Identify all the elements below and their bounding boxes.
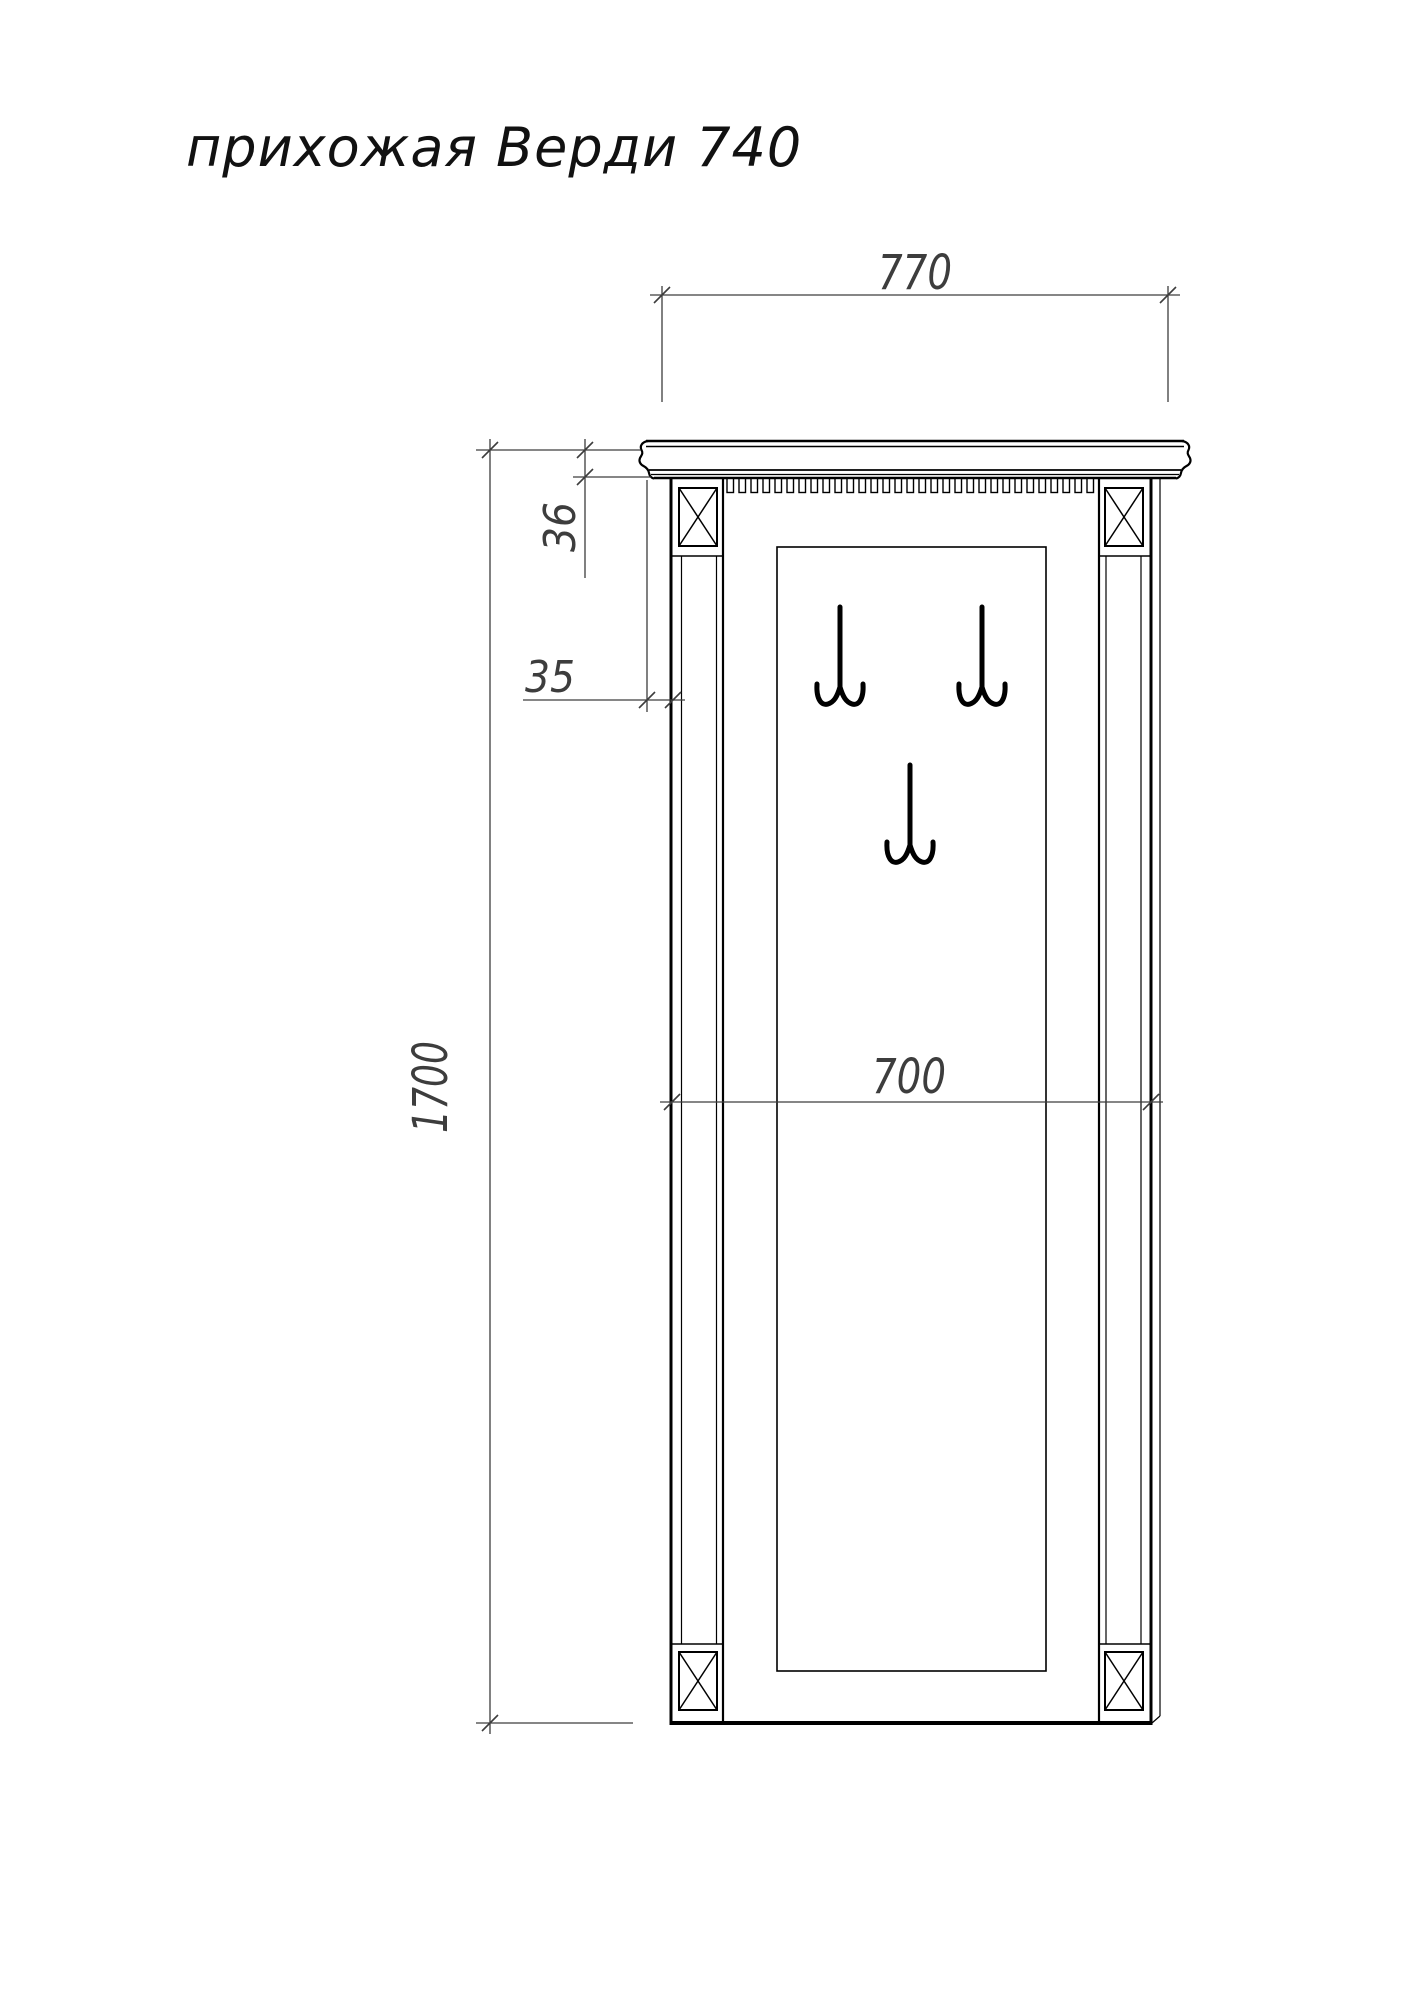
dimension-overall-height-label: 1700 (403, 1041, 459, 1133)
dentil-tooth (955, 479, 962, 493)
dentil-tooth (775, 479, 782, 493)
dentil-tooth (1075, 479, 1082, 493)
inner-panel (777, 547, 1046, 1671)
dimension-body-width: 700 (660, 1049, 1163, 1110)
dimension-cornice-height: 36 (535, 439, 651, 578)
dimension-overall-width: 770 (650, 245, 1180, 402)
hook-fork (817, 684, 863, 704)
dimension-cornice-height-label: 36 (535, 502, 586, 552)
hook-fork (959, 684, 1005, 704)
dentil-molding (727, 479, 1094, 493)
dentil-tooth (979, 479, 986, 493)
dentil-tooth (1003, 479, 1010, 493)
side-return-corner (1152, 1716, 1160, 1723)
dentil-tooth (763, 479, 770, 493)
coat-hook (817, 607, 863, 704)
dentil-tooth (1087, 479, 1094, 493)
dentil-tooth (823, 479, 830, 493)
dentil-tooth (859, 479, 866, 493)
dentil-tooth (1015, 479, 1022, 493)
page: прихожая Верди 740 (0, 0, 1413, 2000)
coat-hook (959, 607, 1005, 704)
left-top-capital (671, 488, 723, 556)
dentil-tooth (1039, 479, 1046, 493)
right-top-capital (1099, 488, 1151, 556)
dentil-tooth (1027, 479, 1034, 493)
dentil-tooth (907, 479, 914, 493)
left-bottom-capital (671, 1644, 723, 1710)
dimension-overall-width-label: 770 (878, 245, 952, 301)
dentil-tooth (943, 479, 950, 493)
dentil-tooth (871, 479, 878, 493)
dentil-tooth (835, 479, 842, 493)
hook-fork (887, 842, 933, 862)
dentil-tooth (811, 479, 818, 493)
dentil-tooth (883, 479, 890, 493)
dentil-tooth (799, 479, 806, 493)
technical-drawing: 770 1700 36 35 (0, 0, 1413, 2000)
right-pilaster (1099, 478, 1151, 1723)
dentil-tooth (847, 479, 854, 493)
dimension-overall-height: 1700 (403, 439, 641, 1734)
coat-hook (887, 765, 933, 862)
dentil-tooth (895, 479, 902, 493)
dimension-body-width-label: 700 (872, 1049, 946, 1105)
dentil-tooth (967, 479, 974, 493)
dentil-tooth (931, 479, 938, 493)
dentil-tooth (751, 479, 758, 493)
coat-hooks (817, 607, 1005, 862)
cornice (639, 441, 1190, 479)
dimension-cornice-overhang-label: 35 (525, 652, 575, 703)
side-return (1152, 479, 1160, 1723)
dentil-tooth (727, 479, 734, 493)
left-pilaster (671, 478, 723, 1723)
dentil-tooth (919, 479, 926, 493)
dentil-tooth (787, 479, 794, 493)
dentil-tooth (1051, 479, 1058, 493)
dentil-tooth (1063, 479, 1070, 493)
dentil-tooth (991, 479, 998, 493)
dentil-tooth (739, 479, 746, 493)
right-bottom-capital (1099, 1644, 1151, 1710)
